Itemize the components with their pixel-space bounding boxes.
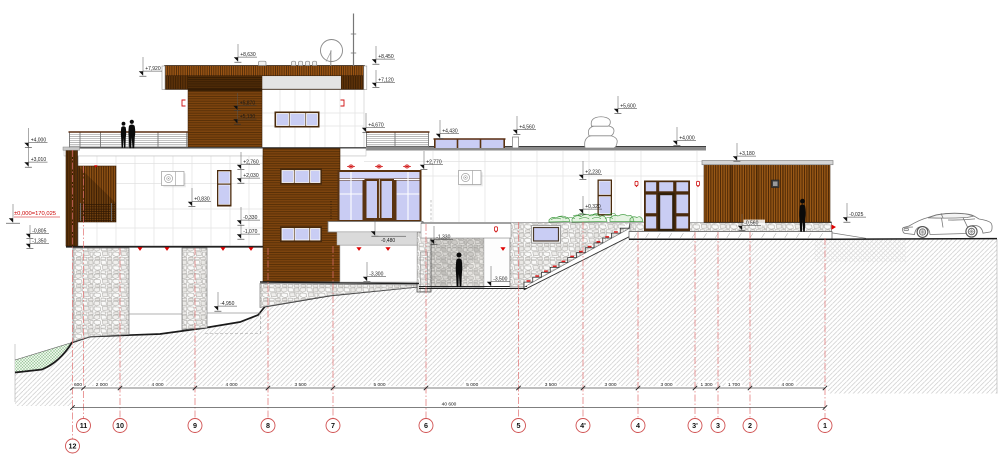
svg-text:-0,480: -0,480	[381, 238, 395, 244]
svg-text:+4,000: +4,000	[679, 135, 695, 141]
svg-text:+0,320: +0,320	[585, 204, 601, 210]
svg-text:1: 1	[823, 421, 827, 430]
svg-text:7: 7	[331, 421, 335, 430]
svg-text:5 000: 5 000	[373, 382, 385, 388]
svg-text:+4,000: +4,000	[31, 137, 47, 143]
svg-text:-1,350: -1,350	[32, 238, 46, 244]
svg-text:+4,670: +4,670	[368, 122, 384, 128]
svg-text:3 500: 3 500	[294, 382, 306, 388]
svg-text:40 600: 40 600	[442, 401, 457, 407]
svg-text:+3,010: +3,010	[31, 157, 47, 163]
svg-text:1 300: 1 300	[700, 382, 712, 388]
svg-text:11: 11	[80, 421, 88, 430]
svg-text:8: 8	[266, 421, 270, 430]
svg-text:+7,920: +7,920	[145, 66, 161, 72]
svg-text:+2,030: +2,030	[243, 173, 259, 179]
svg-text:3 500: 3 500	[545, 382, 557, 388]
svg-text:-4,950: -4,950	[220, 301, 234, 307]
svg-text:+2,760: +2,760	[243, 159, 259, 165]
svg-text:+8,450: +8,450	[378, 54, 394, 60]
svg-text:2: 2	[748, 421, 752, 430]
svg-text:3 000: 3 000	[660, 382, 672, 388]
svg-text:3: 3	[716, 421, 720, 430]
svg-text:6: 6	[424, 421, 428, 430]
svg-text:+5,130: +5,130	[240, 114, 256, 120]
svg-text:600: 600	[74, 382, 82, 388]
svg-text:5 000: 5 000	[466, 382, 478, 388]
svg-text:±0,000=170,025: ±0,000=170,025	[14, 211, 56, 217]
svg-text:12: 12	[69, 442, 77, 451]
svg-text:-3,500: -3,500	[493, 276, 507, 282]
svg-text:4 000: 4 000	[151, 382, 163, 388]
svg-text:+2,770: +2,770	[426, 159, 442, 165]
svg-text:+3,180: +3,180	[739, 151, 755, 157]
svg-text:4': 4'	[580, 421, 586, 430]
svg-text:-3,300: -3,300	[369, 271, 383, 277]
svg-text:3': 3'	[692, 421, 698, 430]
svg-text:+5,870: +5,870	[240, 100, 256, 106]
svg-text:-0,025: -0,025	[849, 212, 863, 218]
svg-text:4 000: 4 000	[781, 382, 793, 388]
svg-text:5: 5	[517, 421, 521, 430]
svg-text:-0,330: -0,330	[243, 215, 257, 221]
svg-text:2 000: 2 000	[96, 382, 108, 388]
svg-text:10: 10	[116, 421, 124, 430]
svg-text:+8,630: +8,630	[240, 52, 256, 58]
svg-text:-1,330: -1,330	[436, 234, 450, 240]
svg-text:+4,560: +4,560	[519, 124, 535, 130]
svg-text:-0,560: -0,560	[744, 220, 758, 226]
svg-text:-1,070: -1,070	[243, 229, 257, 235]
svg-text:+2,230: +2,230	[585, 169, 601, 175]
svg-text:+4,430: +4,430	[442, 128, 458, 134]
svg-text:1 700: 1 700	[728, 382, 740, 388]
svg-text:+5,600: +5,600	[620, 103, 636, 109]
svg-text:3 000: 3 000	[604, 382, 616, 388]
svg-text:+0,830: +0,830	[194, 196, 210, 202]
svg-text:-0,805: -0,805	[32, 228, 46, 234]
svg-text:4: 4	[636, 421, 640, 430]
svg-text:4 000: 4 000	[225, 382, 237, 388]
svg-text:9: 9	[193, 421, 197, 430]
svg-text:+7,120: +7,120	[378, 77, 394, 83]
